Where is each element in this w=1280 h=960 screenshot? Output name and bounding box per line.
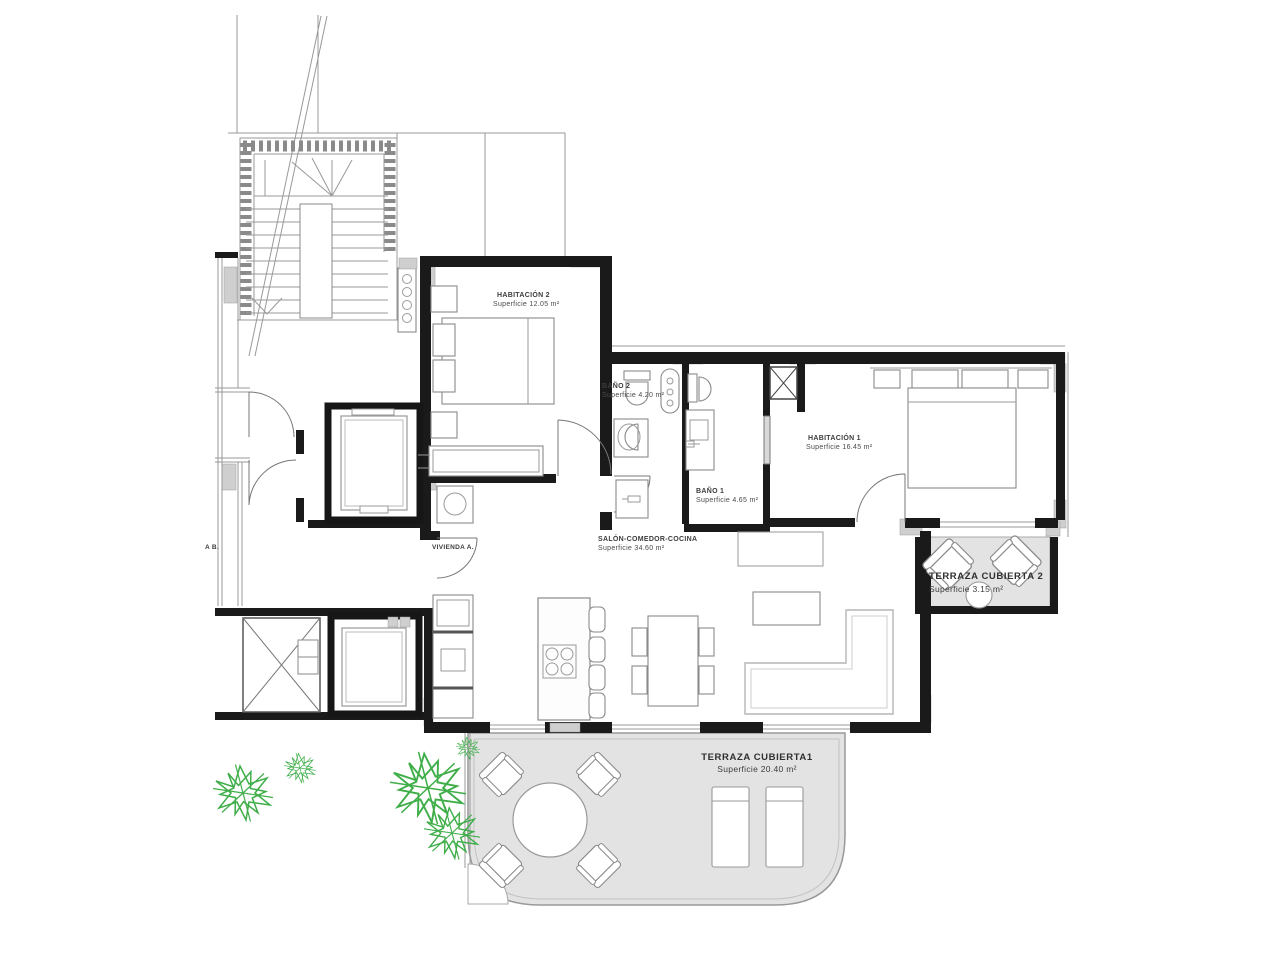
label-terraza-2: TERRAZA CUBIERTA 2 <box>929 571 1043 582</box>
kitchen <box>433 486 605 720</box>
plants <box>213 736 481 862</box>
label-vivienda-b: A B. <box>205 544 219 551</box>
elevator-1 <box>328 406 430 520</box>
label-vivienda-a: VIVIENDA A. <box>432 544 474 551</box>
sun-lounger-icon <box>766 787 803 867</box>
label-salon: SALÓN-COMEDOR-COCINA <box>598 534 697 543</box>
floor-plan-page: HABITACIÓN 2 Superficie 12.05 m² BAÑO 2 … <box>0 0 1280 960</box>
terrace-table-round <box>513 783 587 857</box>
dining-set <box>632 616 714 706</box>
label-bano-2-area: Superficie 4.20 m² <box>602 392 665 399</box>
label-habitacion-1: HABITACIÓN 1 <box>808 433 861 442</box>
stairwell <box>237 138 397 320</box>
dining-table <box>648 616 698 706</box>
label-bano-2: BAÑO 2 <box>602 381 630 390</box>
door-habitacion-1 <box>857 474 905 522</box>
sun-lounger-icon <box>712 787 749 867</box>
shaft-x <box>243 618 320 712</box>
sofa-icon <box>745 610 893 714</box>
floor-plan-drawing: HABITACIÓN 2 Superficie 12.05 m² BAÑO 2 … <box>0 0 1280 960</box>
shower-icon <box>770 367 797 399</box>
wardrobe-icon <box>398 268 416 332</box>
habitacion-1-furniture <box>870 368 1052 488</box>
label-terraza-1: TERRAZA CUBIERTA1 <box>701 752 813 763</box>
label-terraza-1-area: Superficie 20.40 m² <box>717 764 796 774</box>
living-room <box>738 532 893 714</box>
label-terraza-2-area: Superficie 3.15 m² <box>929 584 1003 594</box>
label-habitacion-2: HABITACIÓN 2 <box>497 290 550 299</box>
tv-console <box>753 592 820 625</box>
label-bano-1-area: Superficie 4.65 m² <box>696 497 759 504</box>
label-salon-area: Superficie 34.60 m² <box>598 545 665 552</box>
habitacion-2-furniture <box>429 286 554 476</box>
pocket-door-bano-1 <box>764 416 770 464</box>
label-bano-1: BAÑO 1 <box>696 486 724 495</box>
elevator-2 <box>331 616 419 714</box>
label-habitacion-1-area: Superficie 16.45 m² <box>806 444 873 451</box>
bano-1-fixtures <box>686 367 797 470</box>
label-habitacion-2-area: Superficie 12.05 m² <box>493 301 560 308</box>
sideboard <box>738 532 823 566</box>
hall-partitions <box>215 258 250 606</box>
